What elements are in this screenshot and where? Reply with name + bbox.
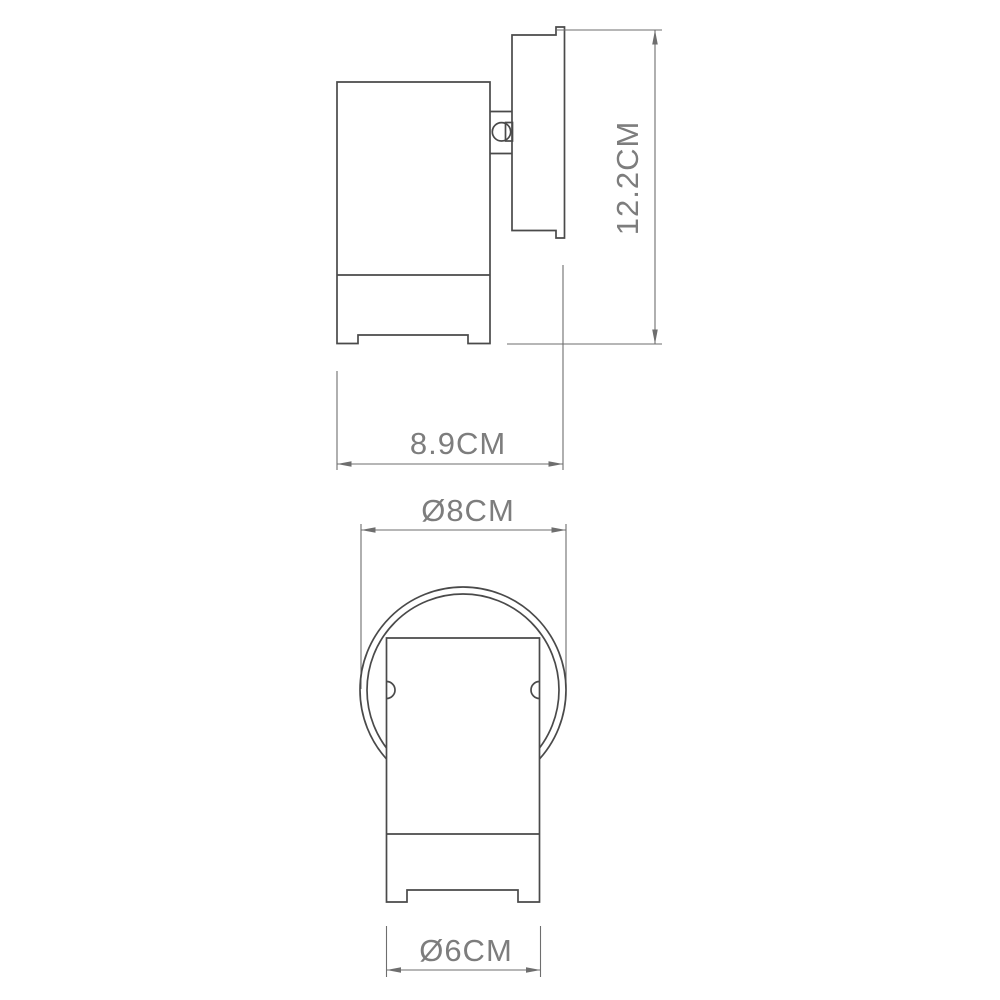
front-view-body-outline	[387, 638, 540, 902]
mounting-bracket	[490, 112, 512, 154]
width-dimension-arrow-right	[549, 461, 564, 467]
body-diameter-dimension: Ø6CM	[387, 926, 541, 977]
height-dimension: 12.2CM	[507, 30, 662, 344]
bracket-screw-head	[492, 123, 510, 141]
outer-diameter-arrow-right	[552, 527, 567, 533]
side-view	[337, 27, 565, 344]
width-dimension-arrow-left	[337, 461, 352, 467]
wall-mount-plate-outline	[512, 27, 565, 238]
side-view-body-outline	[337, 82, 490, 344]
height-dimension-arrow-up	[652, 30, 658, 45]
body-diameter-arrow-left	[387, 967, 402, 973]
width-dimension-label: 8.9CM	[410, 426, 506, 461]
outer-diameter-arrow-left	[361, 527, 376, 533]
outer-diameter-label: Ø8CM	[421, 493, 515, 528]
height-dimension-label: 12.2CM	[610, 121, 645, 236]
height-dimension-arrow-down	[652, 330, 658, 345]
dimension-drawing: 12.2CM 8.9CM Ø8CM	[0, 0, 1000, 1000]
front-view	[360, 587, 566, 902]
body-diameter-arrow-right	[526, 967, 541, 973]
body-diameter-label: Ø6CM	[419, 933, 513, 968]
technical-drawing-canvas: 12.2CM 8.9CM Ø8CM	[0, 0, 1000, 1000]
width-dimension: 8.9CM	[337, 265, 563, 470]
